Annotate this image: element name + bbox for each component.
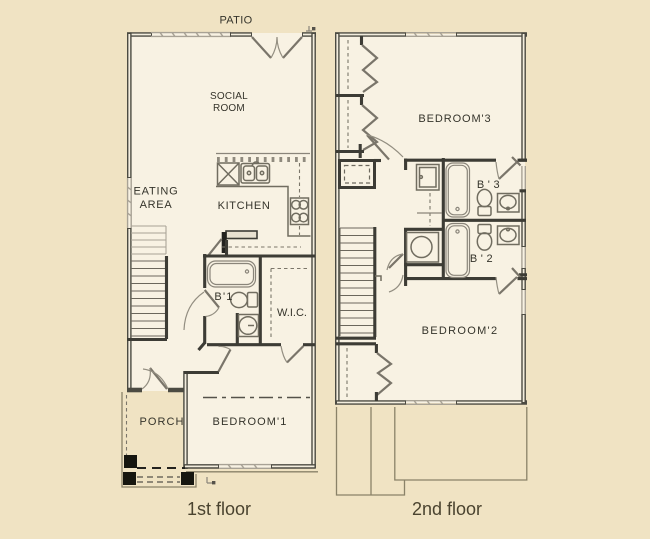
svg-text:W.I.C.: W.I.C. bbox=[277, 307, 307, 319]
svg-text:PORCH: PORCH bbox=[140, 416, 185, 428]
svg-text:SOCIAL: SOCIAL bbox=[210, 91, 248, 102]
svg-text:BEDROOM'2: BEDROOM'2 bbox=[422, 325, 499, 337]
svg-text:PATIO: PATIO bbox=[219, 15, 252, 27]
svg-text:B'1: B'1 bbox=[214, 291, 233, 303]
svg-text:EATING: EATING bbox=[134, 186, 179, 198]
svg-text:2nd floor: 2nd floor bbox=[412, 499, 482, 519]
svg-text:B'3: B'3 bbox=[477, 179, 503, 191]
svg-text:ROOM: ROOM bbox=[213, 103, 245, 114]
svg-text:B'2: B'2 bbox=[470, 253, 496, 265]
svg-text:1st floor: 1st floor bbox=[187, 499, 251, 519]
svg-text:AREA: AREA bbox=[140, 199, 173, 211]
svg-text:KITCHEN: KITCHEN bbox=[218, 200, 271, 212]
svg-text:BEDROOM'1: BEDROOM'1 bbox=[213, 416, 288, 428]
svg-text:BEDROOM'3: BEDROOM'3 bbox=[418, 113, 491, 125]
